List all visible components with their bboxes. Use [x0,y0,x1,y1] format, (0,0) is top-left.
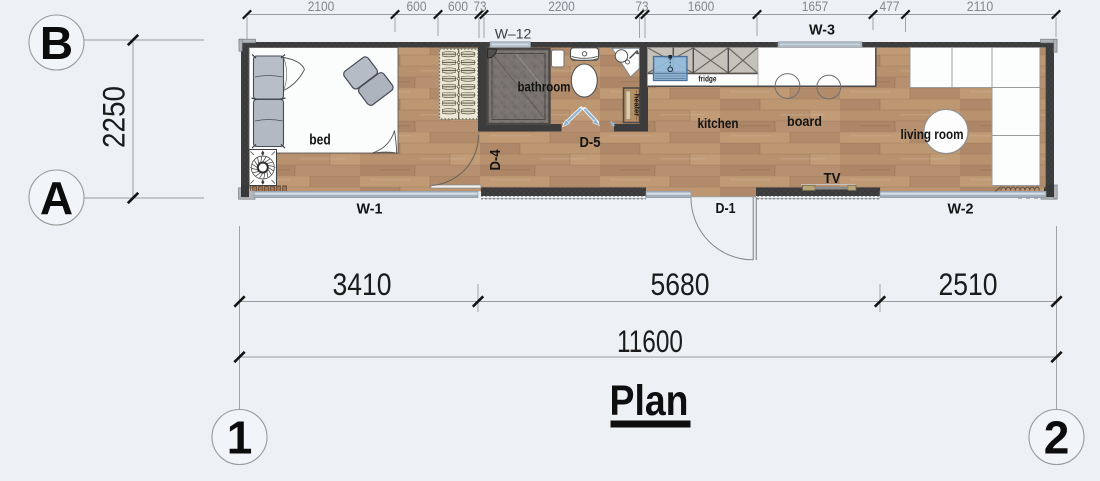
svg-text:heater: heater [633,94,642,117]
svg-text:TV: TV [824,171,841,187]
svg-text:1600: 1600 [688,0,715,14]
svg-text:600: 600 [448,0,468,14]
svg-text:A: A [40,172,73,224]
svg-text:W-1: W-1 [357,202,383,218]
svg-text:1657: 1657 [802,0,829,14]
svg-text:477: 477 [880,0,900,14]
svg-text:600: 600 [407,0,427,14]
svg-text:2510: 2510 [939,266,998,302]
svg-text:73: 73 [474,0,487,14]
svg-text:2: 2 [1044,412,1070,464]
svg-text:D-4: D-4 [487,149,504,171]
svg-text:D-5: D-5 [580,134,601,151]
svg-text:5680: 5680 [651,266,710,302]
svg-text:73: 73 [636,0,649,14]
svg-text:B: B [40,17,73,69]
svg-text:W–12: W–12 [495,26,532,42]
svg-text:2110: 2110 [967,0,994,14]
svg-text:kitchen: kitchen [698,115,739,131]
svg-text:2250: 2250 [96,86,132,148]
svg-text:living room: living room [901,127,964,142]
svg-text:2100: 2100 [308,0,335,14]
svg-text:W-2: W-2 [948,202,974,218]
svg-text:1: 1 [227,412,253,464]
svg-text:Plan: Plan [610,377,689,425]
svg-text:board: board [787,113,822,129]
svg-text:W-3: W-3 [809,23,835,39]
svg-text:11600: 11600 [617,323,683,359]
svg-text:bathroom: bathroom [518,80,571,95]
svg-text:3410: 3410 [333,266,392,302]
svg-text:fridge: fridge [699,74,717,84]
svg-text:bed: bed [309,132,331,149]
svg-text:D-1: D-1 [716,201,736,217]
svg-text:2200: 2200 [548,0,575,14]
